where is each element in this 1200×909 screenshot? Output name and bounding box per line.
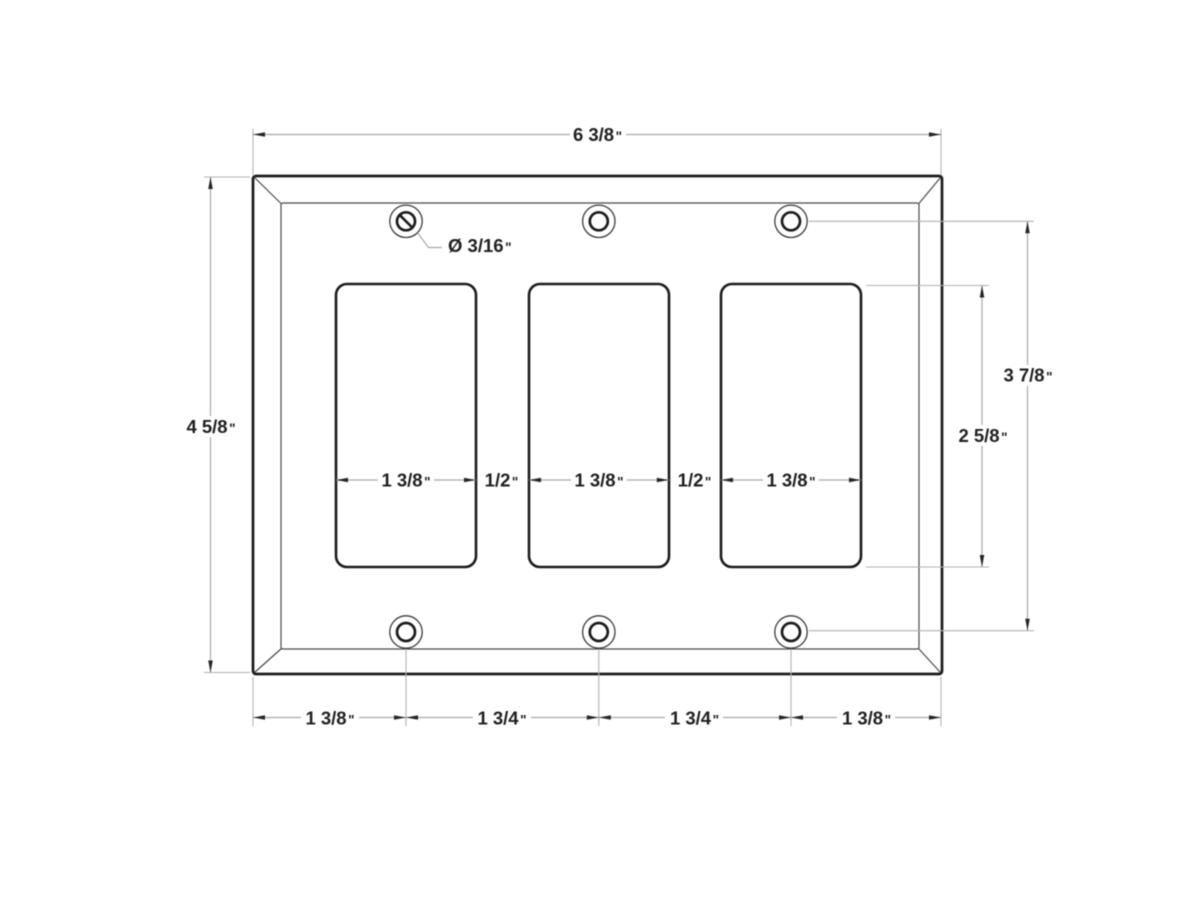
svg-text:1 3/8 ": 1 3/8 " [381, 470, 430, 491]
svg-text:1 3/4 ": 1 3/4 " [477, 708, 526, 729]
svg-text:3 7/8 ": 3 7/8 " [1003, 365, 1052, 386]
svg-text:Ø 3/16 ": Ø 3/16 " [448, 235, 512, 256]
svg-text:1 3/8 ": 1 3/8 " [305, 708, 354, 729]
svg-text:2 5/8 ": 2 5/8 " [958, 425, 1007, 446]
svg-text:1 3/4 ": 1 3/4 " [670, 708, 719, 729]
svg-text:1 3/8 ": 1 3/8 " [766, 470, 815, 491]
svg-text:4 5/8 ": 4 5/8 " [186, 416, 235, 437]
svg-text:1 3/8 ": 1 3/8 " [574, 470, 623, 491]
svg-text:6 3/8 ": 6 3/8 " [573, 124, 622, 145]
svg-text:1 3/8 ": 1 3/8 " [842, 708, 891, 729]
